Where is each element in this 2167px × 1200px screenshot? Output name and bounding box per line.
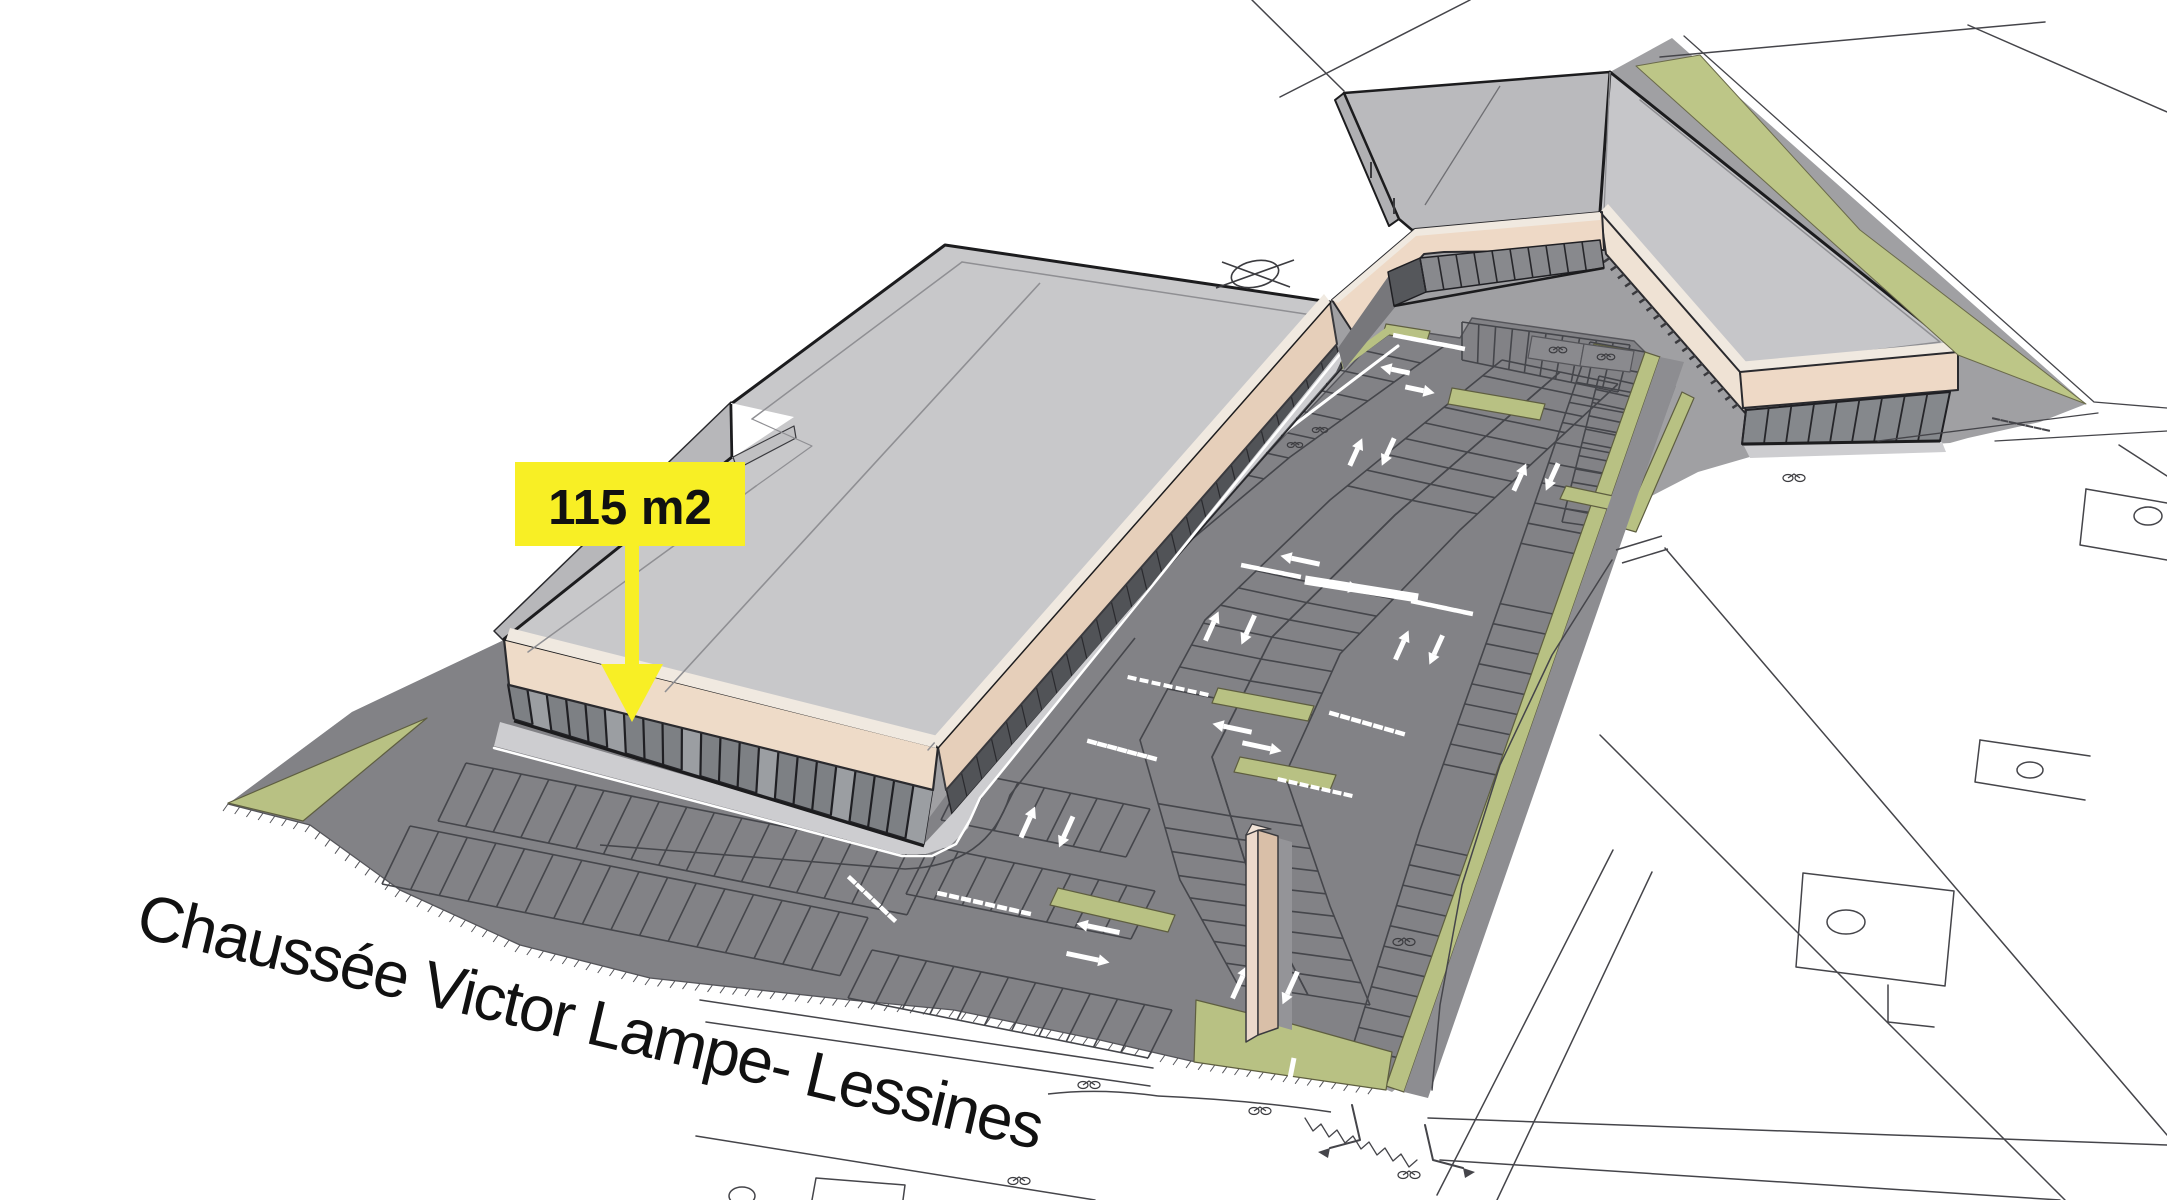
svg-text:115 m2: 115 m2 bbox=[548, 481, 712, 535]
